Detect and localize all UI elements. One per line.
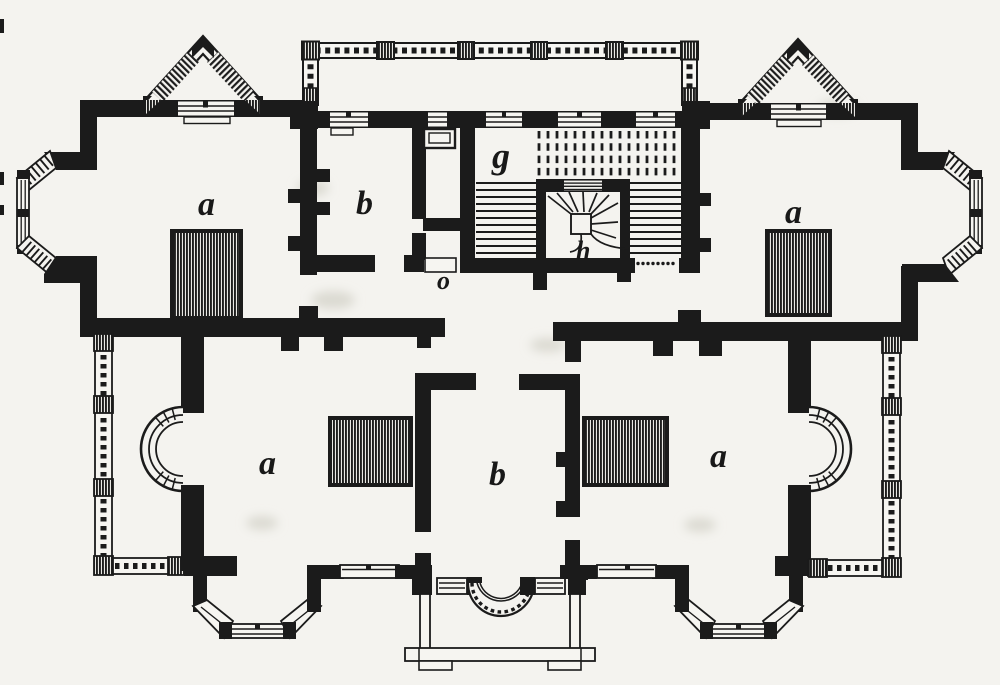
- svg-text:a: a: [785, 194, 802, 231]
- svg-text:a: a: [198, 186, 215, 223]
- svg-text:g: g: [491, 136, 510, 176]
- svg-text:b: b: [356, 185, 373, 222]
- svg-text:b: b: [489, 456, 506, 493]
- svg-text:o: o: [437, 266, 450, 295]
- svg-text:a: a: [259, 445, 276, 482]
- svg-text:h: h: [576, 236, 590, 265]
- svg-text:a: a: [710, 438, 727, 475]
